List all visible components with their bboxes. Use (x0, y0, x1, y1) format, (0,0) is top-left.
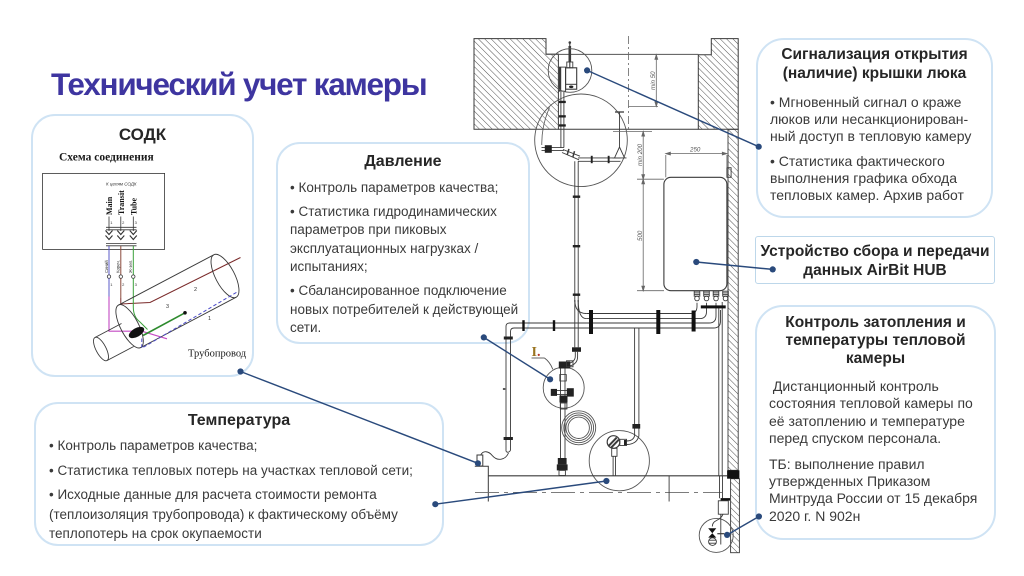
svg-text:500: 500 (637, 230, 644, 241)
svg-text:I.: I. (532, 345, 541, 360)
svg-text:min 200: min 200 (637, 143, 644, 166)
svg-text:min 50: min 50 (650, 71, 657, 90)
svg-text:250: 250 (689, 147, 701, 154)
